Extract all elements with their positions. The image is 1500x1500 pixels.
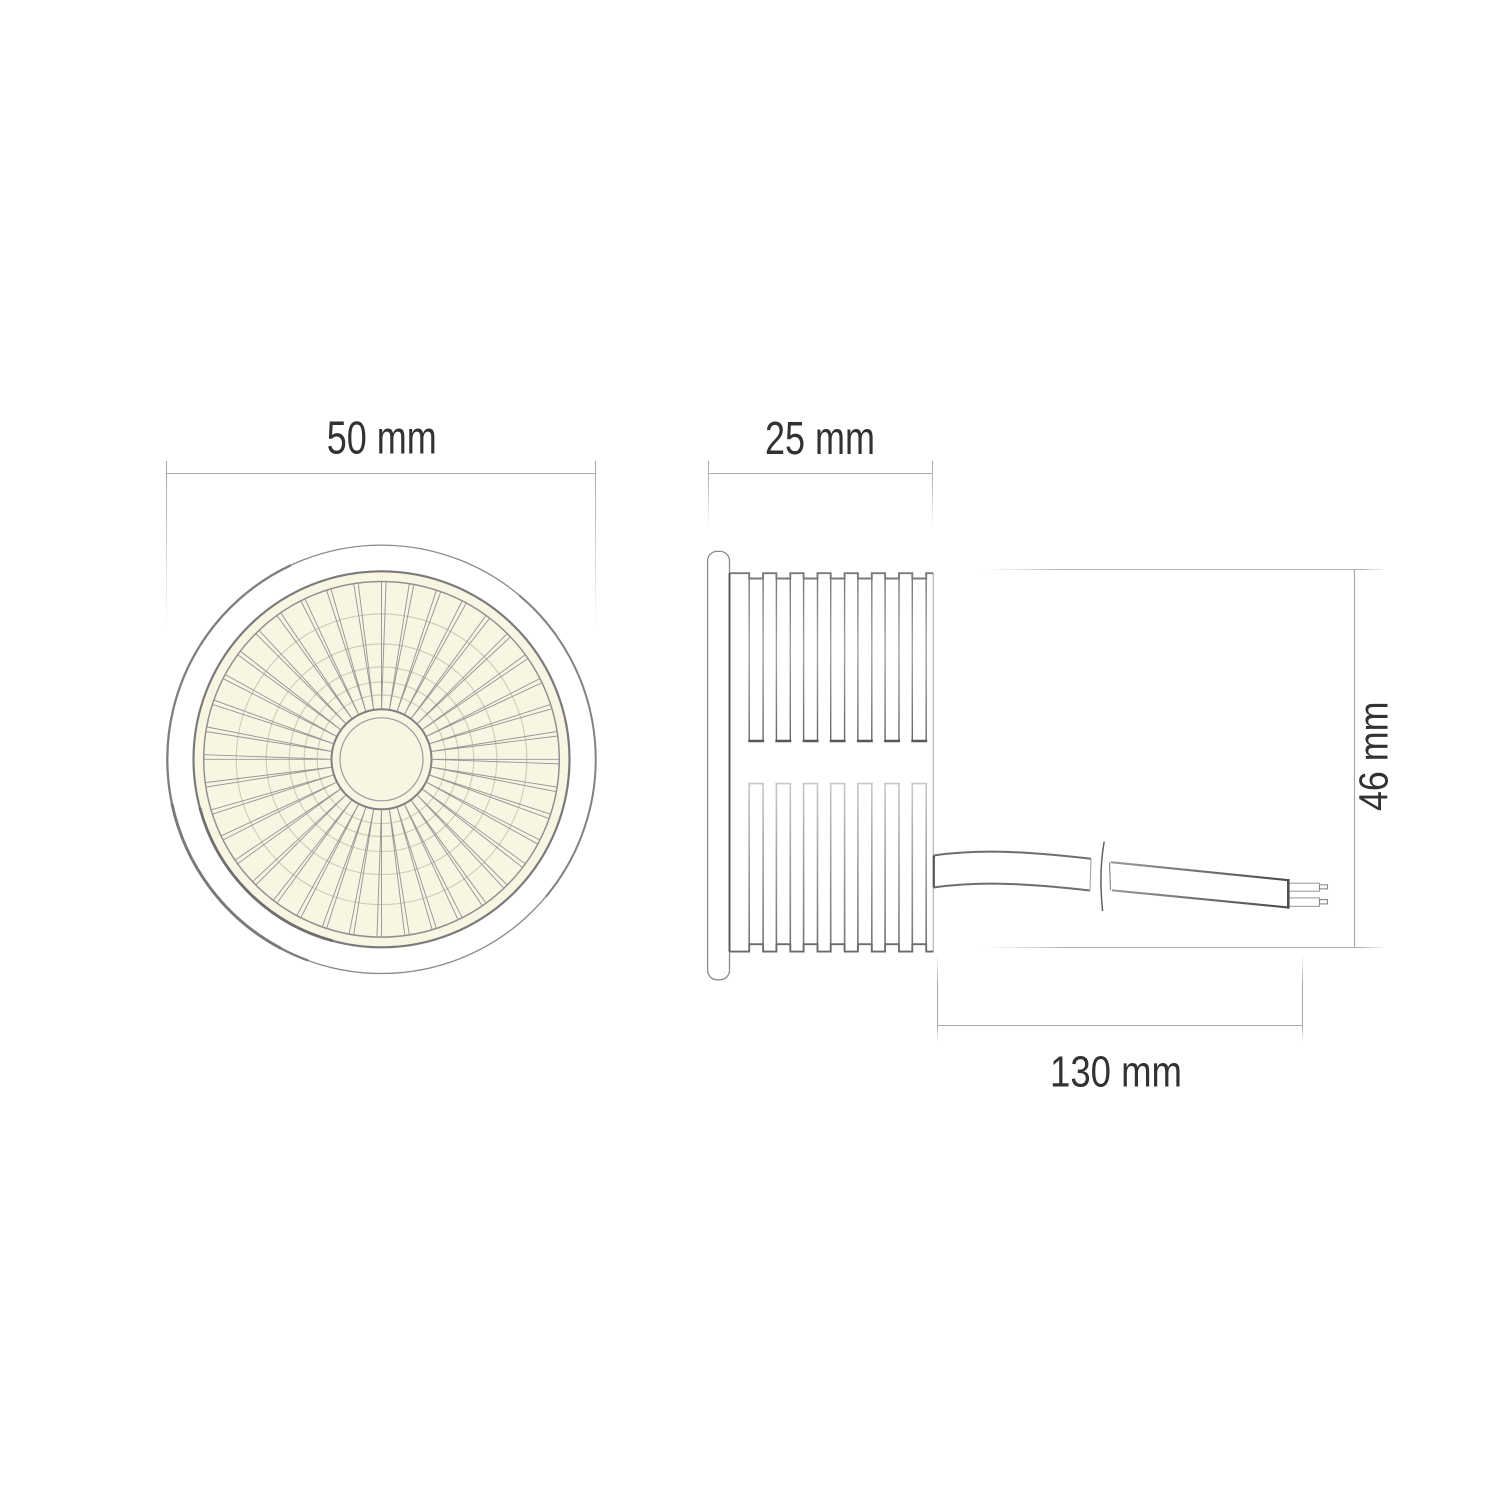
svg-text:130 mm: 130 mm (1050, 1048, 1182, 1097)
svg-text:25 mm: 25 mm (765, 412, 875, 464)
svg-text:50 mm: 50 mm (327, 411, 437, 463)
svg-text:46 mm: 46 mm (1351, 702, 1397, 812)
